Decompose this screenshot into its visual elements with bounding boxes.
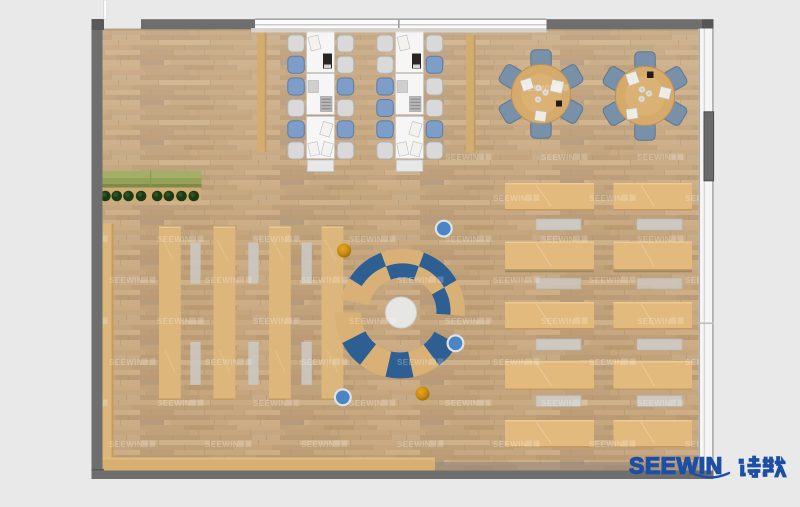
svg-text:SEEWIN: SEEWIN [253, 317, 287, 326]
svg-text:SEEWIN: SEEWIN [205, 440, 239, 449]
svg-text:SEEWIN: SEEWIN [157, 235, 191, 244]
svg-text:SEEWIN: SEEWIN [301, 440, 335, 449]
svg-text:SEEWIN: SEEWIN [349, 235, 383, 244]
svg-text:SEEWIN: SEEWIN [522, 84, 556, 93]
svg-text:SEEWIN: SEEWIN [541, 235, 575, 244]
svg-text:SEEWIN: SEEWIN [253, 399, 287, 408]
svg-text:SEEWIN: SEEWIN [397, 358, 431, 367]
svg-text:SEEWIN: SEEWIN [109, 440, 143, 449]
svg-text:SEEWIN: SEEWIN [589, 194, 623, 203]
svg-text:SEEWIN: SEEWIN [493, 358, 527, 367]
svg-text:SEEWIN: SEEWIN [541, 153, 575, 162]
svg-text:SEEWIN: SEEWIN [109, 358, 143, 367]
svg-text:SEEWIN: SEEWIN [541, 399, 575, 408]
svg-text:SEEWIN: SEEWIN [445, 317, 479, 326]
svg-text:SEEWIN: SEEWIN [629, 453, 723, 479]
svg-text:SEEWIN: SEEWIN [493, 194, 527, 203]
svg-text:SEEWIN: SEEWIN [205, 276, 239, 285]
svg-text:SEEWIN: SEEWIN [637, 153, 671, 162]
svg-text:SEEWIN: SEEWIN [349, 317, 383, 326]
svg-text:SEEWIN: SEEWIN [109, 276, 143, 285]
svg-text:SEEWIN: SEEWIN [589, 440, 623, 449]
svg-text:SEEWIN: SEEWIN [157, 317, 191, 326]
svg-text:SEEWIN: SEEWIN [637, 317, 671, 326]
svg-text:SEEWIN: SEEWIN [445, 153, 479, 162]
svg-text:SEEWIN: SEEWIN [589, 276, 623, 285]
svg-text:SEEWIN: SEEWIN [445, 399, 479, 408]
svg-text:SEEWIN: SEEWIN [253, 235, 287, 244]
svg-text:SEEWIN: SEEWIN [157, 399, 191, 408]
svg-text:SEEWIN: SEEWIN [589, 358, 623, 367]
svg-text:SEEWIN: SEEWIN [397, 440, 431, 449]
svg-text:SEEWIN: SEEWIN [445, 235, 479, 244]
svg-text:SEEWIN: SEEWIN [637, 235, 671, 244]
svg-text:SEEWIN: SEEWIN [493, 276, 527, 285]
svg-text:SEEWIN: SEEWIN [493, 440, 527, 449]
svg-text:SEEWIN: SEEWIN [205, 358, 239, 367]
svg-text:SEEWIN: SEEWIN [637, 399, 671, 408]
svg-text:SEEWIN: SEEWIN [301, 358, 335, 367]
svg-text:SEEWIN: SEEWIN [349, 399, 383, 408]
svg-text:SEEWIN: SEEWIN [397, 276, 431, 285]
svg-text:SEEWIN: SEEWIN [541, 317, 575, 326]
svg-text:SEEWIN: SEEWIN [301, 276, 335, 285]
